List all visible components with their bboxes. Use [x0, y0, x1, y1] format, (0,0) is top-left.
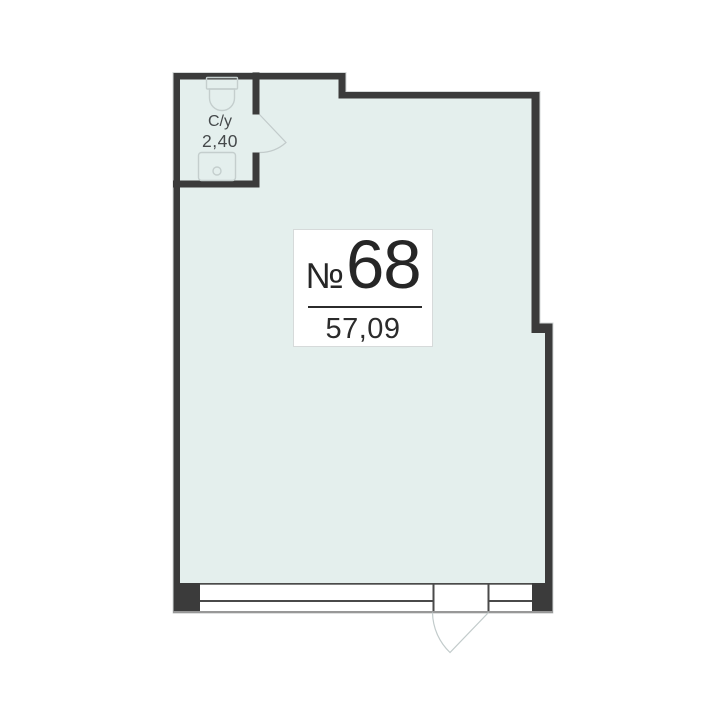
- unit-number: 68: [346, 230, 421, 299]
- balcony-door-jamb-right: [488, 583, 490, 611]
- label-divider: [308, 306, 422, 308]
- window-band: [173, 583, 553, 613]
- unit-number-row: № 68: [305, 230, 420, 299]
- floor-plan-drawing: [0, 0, 726, 726]
- unit-number-sign: №: [305, 258, 344, 294]
- window-sill-line-left: [200, 600, 433, 602]
- bathroom-name: С/у: [183, 113, 257, 131]
- unit-label-box[interactable]: № 68 57,09: [293, 229, 433, 347]
- balcony-door-swing-icon: [433, 613, 489, 653]
- bathroom-area: 2,40: [183, 131, 257, 151]
- window-frame-top-line: [200, 583, 532, 585]
- window-outer-sill-line: [173, 611, 553, 613]
- bathroom-wall-right-upper: [253, 73, 260, 115]
- window-sill-line-right: [489, 600, 533, 602]
- bathroom-label: С/у 2,40: [183, 113, 257, 152]
- bathroom-wall-bottom: [173, 181, 260, 188]
- balcony-door-jamb-left: [433, 583, 435, 611]
- floor-plan-canvas: № 68 57,09 С/у 2,40: [0, 0, 726, 726]
- unit-area: 57,09: [325, 313, 400, 346]
- window-band-background: [200, 583, 532, 611]
